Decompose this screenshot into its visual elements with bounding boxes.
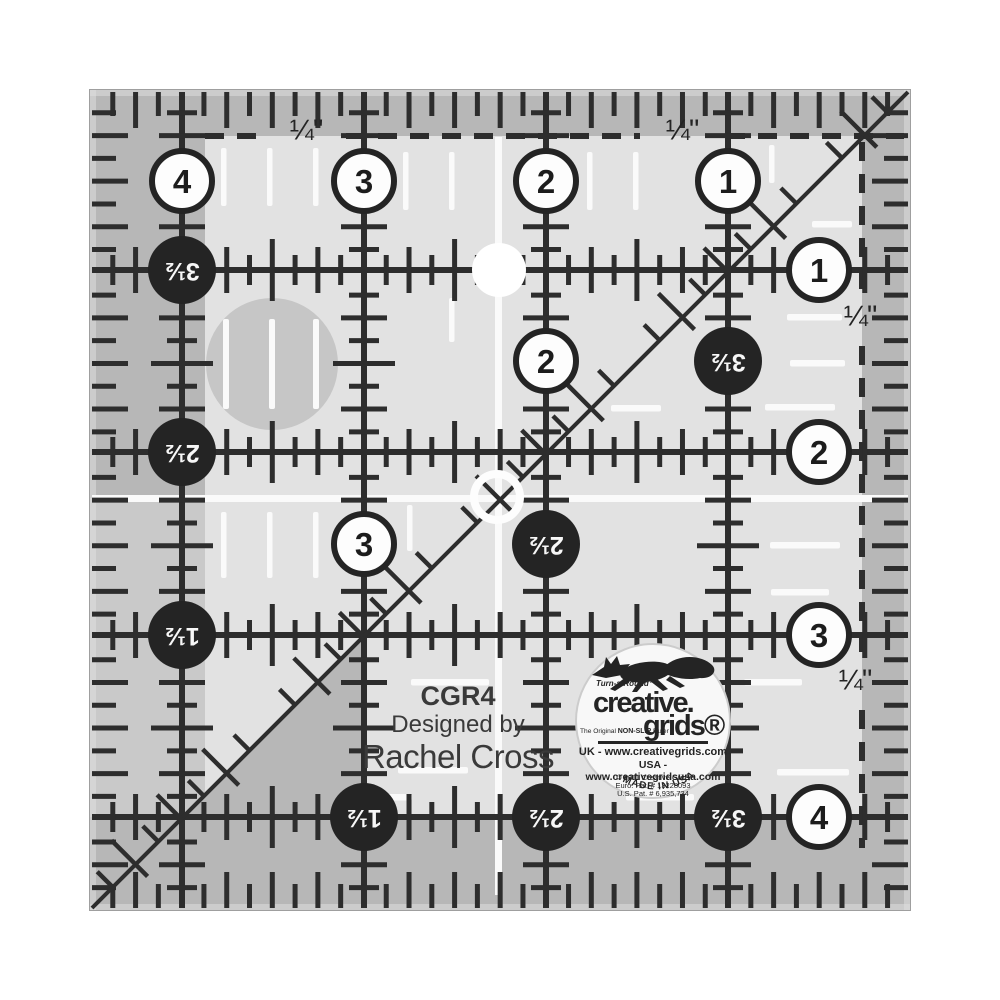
ruler-number-circle: 2: [513, 148, 579, 214]
ruler-fraction-circle: 1½: [330, 783, 398, 851]
ruler-number-circle: 3: [331, 148, 397, 214]
ruler-number-circle: 2: [786, 419, 852, 485]
ruler-fraction-circle: 2½: [512, 510, 580, 578]
ruler-circle-value: 3½: [165, 258, 200, 283]
quarter-inch-label: ¼": [844, 301, 876, 334]
quarter-inch-label: ¼": [839, 665, 871, 698]
ruler-number-circle: 1: [786, 237, 852, 303]
ruler-circle-value: 2½: [529, 532, 564, 557]
ruler-number-circle: 4: [786, 784, 852, 850]
ruler-fraction-circle: 2½: [148, 418, 216, 486]
ruler-fraction-circle: 3½: [694, 783, 762, 851]
model-text-block: CGR4 Designed by Rachel Cross: [358, 682, 558, 775]
quarter-inch-label: ¼": [666, 115, 698, 148]
ruler-fraction-circle: 3½: [148, 236, 216, 304]
ruler-circle-value: 1: [810, 254, 828, 287]
ruler-number-circle: 1: [695, 148, 761, 214]
ruler-fraction-circle: 3½: [694, 327, 762, 395]
designed-by-label: Designed by: [358, 711, 558, 738]
ruler-circle-value: 3: [810, 619, 828, 652]
ruler-circle-value: 3: [355, 528, 373, 561]
ruler-number-circle: 3: [331, 511, 397, 577]
ruler-circle-value: 2½: [165, 440, 200, 465]
ruler-product-photo: CGR4 Designed by Rachel Cross Turn-a-Rou…: [0, 0, 1000, 1000]
ruler-circle-value: 4: [810, 801, 828, 834]
ruler-circle-value: 1: [719, 165, 737, 198]
made-in-usa-text: MADE IN USA: [620, 769, 698, 795]
ruler-circle-value: 2: [537, 165, 555, 198]
hanging-hole: [472, 243, 526, 297]
ruler-number-circle: 3: [786, 602, 852, 668]
ruler-circle-value: 3: [355, 165, 373, 198]
ruler-circle-value: 3½: [711, 805, 746, 830]
ruler-circle-value: 2½: [529, 805, 564, 830]
ruler-circle-value: 4: [173, 165, 191, 198]
ruler-circle-value: 2: [810, 436, 828, 469]
ruler-graphic: [0, 0, 1000, 1000]
ruler-fraction-circle: 2½: [512, 783, 580, 851]
ruler-fraction-circle: 1½: [148, 601, 216, 669]
made-in-usa-arc: MADE IN USA: [572, 640, 739, 807]
ruler-circle-value: 2: [537, 345, 555, 378]
designer-name: Rachel Cross: [358, 738, 558, 775]
model-number: CGR4: [358, 682, 558, 711]
ruler-number-circle: 2: [513, 328, 579, 394]
ruler-circle-value: 1½: [165, 623, 200, 648]
quarter-inch-label: ¼": [290, 115, 322, 148]
ruler-circle-value: 3½: [711, 349, 746, 374]
ruler-number-circle: 4: [149, 148, 215, 214]
grip-circle: [206, 298, 338, 430]
svg-text:MADE IN USA: MADE IN USA: [620, 769, 698, 795]
brand-logo: Turn-a-Round™ creative. grids® The Origi…: [575, 643, 731, 799]
ruler-circle-value: 1½: [347, 805, 382, 830]
